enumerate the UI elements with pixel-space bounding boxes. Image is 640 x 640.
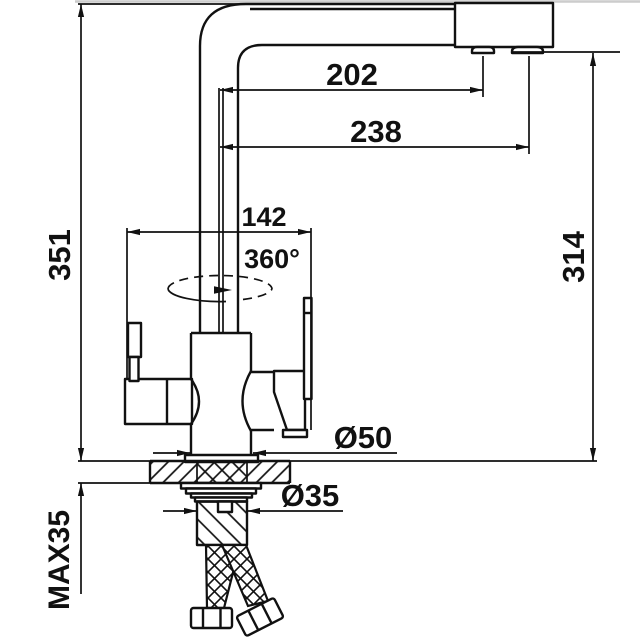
faucet-spout [200, 4, 455, 333]
arrowhead-right [516, 144, 529, 150]
dim-label-142: 142 [241, 202, 286, 232]
annotation-360-swivel: 360° [244, 244, 300, 274]
swivel-ellipse-front-right [243, 289, 272, 300]
faucet-technical-drawing: 351 MAX35 202 238 314 142 360° [0, 0, 640, 640]
supply-hoses [191, 545, 284, 636]
arrowhead-right [298, 229, 311, 235]
swivel-indicator [168, 276, 272, 302]
right-handle-base [274, 371, 305, 430]
arrowhead-up [590, 53, 596, 66]
swivel-ellipse-back [168, 276, 272, 290]
aerator-nozzle-small [472, 47, 494, 53]
dim-label-202: 202 [326, 57, 378, 92]
drawing-canvas: 351 MAX35 202 238 314 142 360° [0, 0, 640, 640]
dim-label-max35: MAX35 [43, 510, 76, 610]
right-hose-nut [236, 598, 283, 637]
dimension-202-reach: 202 [220, 56, 483, 97]
arrowhead-left [220, 87, 233, 93]
right-handle-bottom-tip [283, 430, 307, 437]
arrowhead-left-pointing [247, 508, 260, 514]
dim-label-dia35: Ø35 [281, 478, 340, 513]
left-handle [125, 323, 192, 424]
faucet-head [455, 3, 553, 53]
shank-through-hatch [197, 461, 247, 483]
left-hose-nut [191, 608, 232, 628]
dim-label-314: 314 [556, 230, 591, 282]
arrowhead-up [78, 483, 84, 496]
dim-label-360: 360° [244, 244, 300, 274]
right-handle [251, 298, 312, 437]
dim-label-351: 351 [42, 229, 77, 281]
left-handle-base [125, 379, 192, 424]
dim-label-238: 238 [350, 114, 402, 149]
arrowhead-left [220, 144, 233, 150]
dimension-max35-counter-thickness: MAX35 [43, 483, 84, 610]
faucet-body [185, 333, 258, 462]
dimension-314-outlet-height: 314 [511, 52, 620, 461]
arrowhead-right [470, 87, 483, 93]
left-handle-lever-upper [128, 323, 141, 357]
arrowhead-right-pointing [184, 508, 197, 514]
arrowhead-down [78, 448, 84, 461]
shank-center-fitting [218, 502, 232, 513]
arrowhead-down [590, 448, 596, 461]
mounting-hardware [181, 483, 261, 545]
left-handle-lever-lower [130, 357, 139, 381]
arrowhead-left [127, 229, 140, 235]
dim-label-dia50: Ø50 [334, 420, 393, 455]
body-right-boss-arc [243, 371, 252, 431]
arrowhead-up [78, 4, 84, 17]
dimension-dia50-base: Ø50 [153, 420, 397, 456]
spout-head [455, 3, 553, 47]
